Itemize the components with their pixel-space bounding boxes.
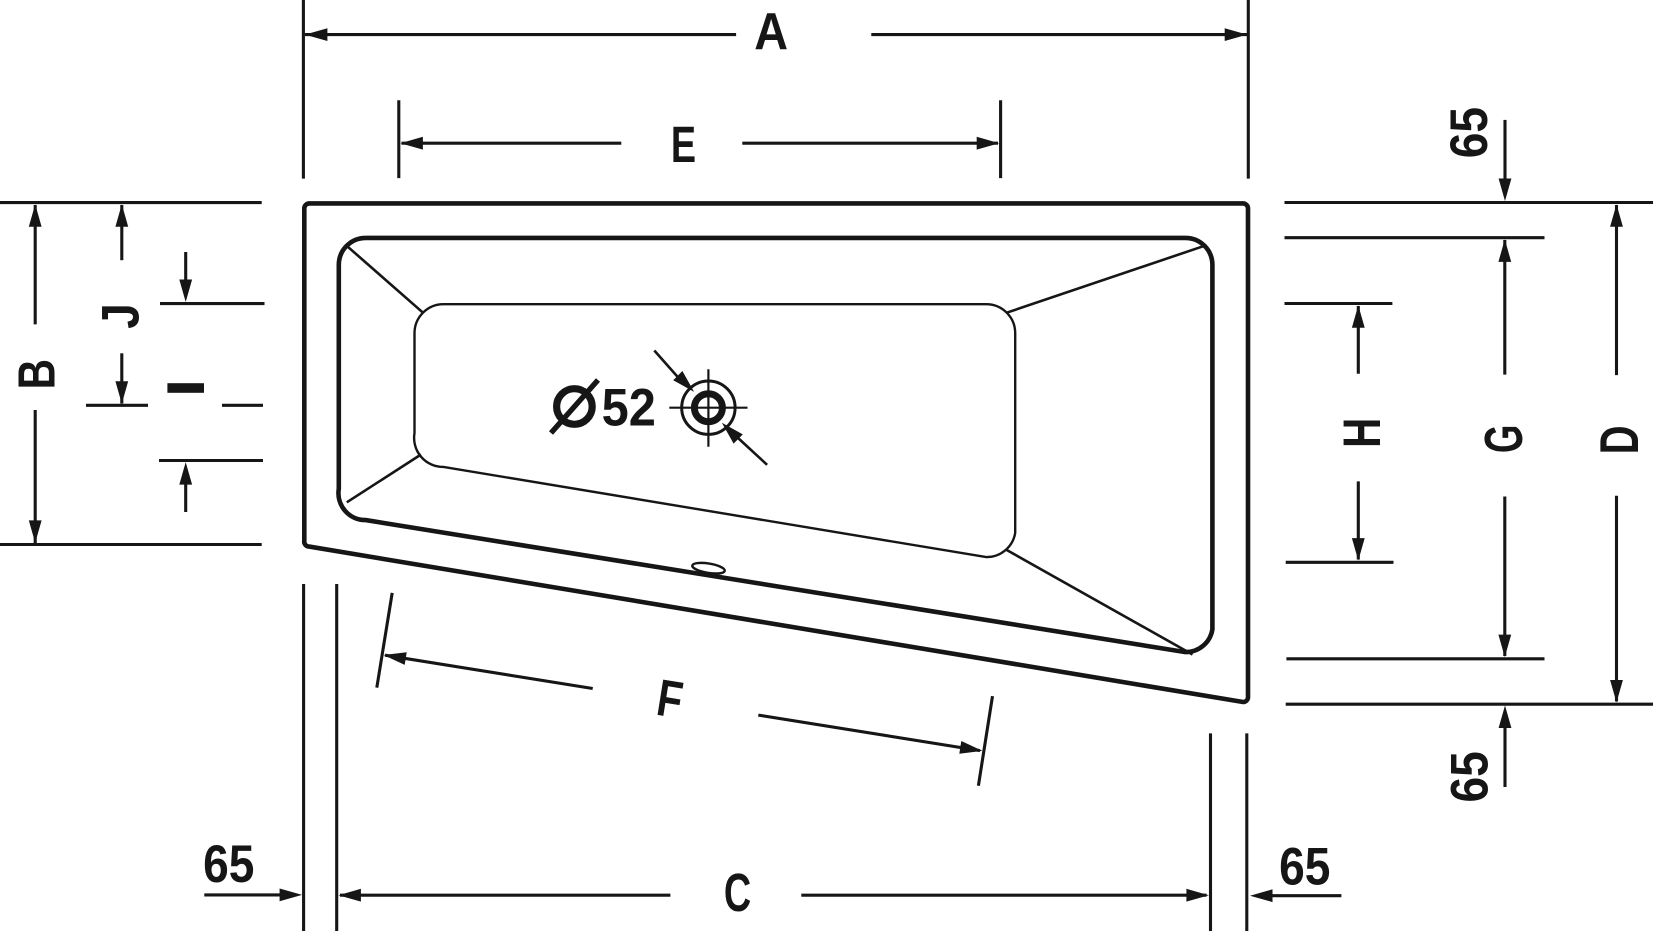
svg-text:65: 65	[203, 834, 254, 894]
svg-text:D: D	[1590, 426, 1651, 455]
svg-text:65: 65	[1440, 751, 1500, 802]
svg-text:J: J	[90, 303, 150, 329]
svg-text:C: C	[724, 862, 751, 922]
svg-text:52: 52	[602, 378, 656, 437]
svg-text:A: A	[754, 3, 788, 61]
svg-text:E: E	[671, 115, 696, 173]
svg-text:G: G	[1473, 425, 1534, 454]
svg-text:H: H	[1333, 418, 1392, 448]
svg-text:B: B	[7, 359, 65, 389]
svg-text:65: 65	[1279, 836, 1330, 896]
svg-text:65: 65	[1439, 107, 1499, 158]
